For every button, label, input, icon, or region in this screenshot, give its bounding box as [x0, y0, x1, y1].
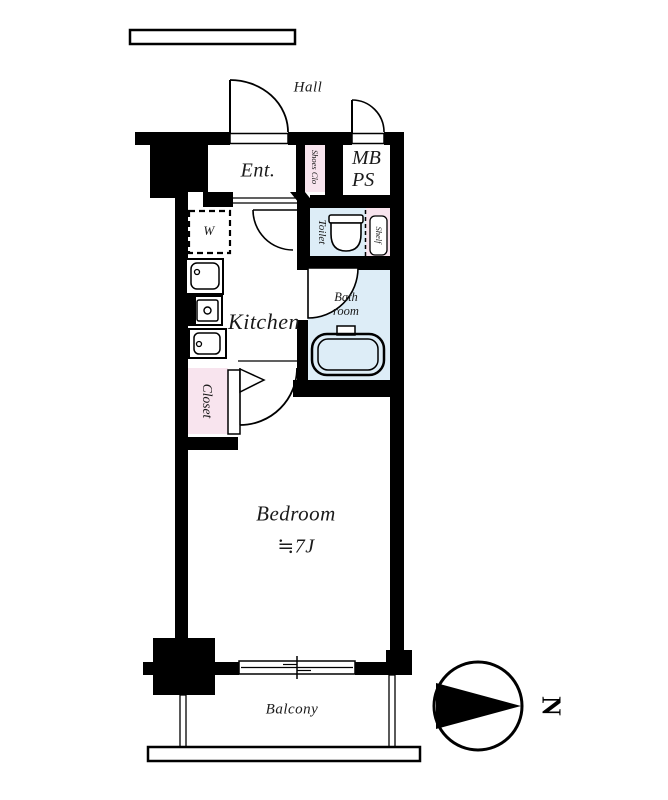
- north-label: N: [536, 696, 567, 716]
- balcony-edge: [148, 747, 420, 761]
- kitchen-label: Kitchen: [228, 309, 300, 335]
- kitchen-counter: [186, 259, 226, 358]
- washer-label: W: [203, 223, 214, 239]
- floorplan-drawing: [0, 0, 668, 800]
- bedroom-size-label: ≒7J: [277, 534, 314, 559]
- compass: [434, 662, 522, 750]
- scale-bar: [130, 30, 295, 44]
- meter-box-label: MB: [352, 147, 381, 169]
- bedroom-label: Bedroom: [256, 502, 336, 527]
- shoes-closet-label: Shoes Clo: [310, 150, 320, 184]
- entrance-door: [230, 80, 288, 144]
- bedroom-door: [238, 361, 300, 425]
- kitchen-door: [253, 210, 297, 250]
- floor-plan: Hall Ent. Shoes Clo MB PS W Toilet Shelf…: [0, 0, 668, 800]
- hall-label: Hall: [294, 80, 323, 97]
- toilet-label: Toilet: [316, 220, 328, 245]
- entry-step: [233, 198, 298, 203]
- meter-pipe-label: MB PS: [352, 147, 381, 192]
- entrance-label: Ent.: [241, 160, 276, 183]
- balcony-window: [239, 656, 355, 679]
- bathroom-label: Bath room: [333, 290, 359, 318]
- balcony-label: Balcony: [266, 702, 319, 719]
- closet-label: Closet: [199, 384, 215, 419]
- pipe-space-label: PS: [352, 169, 381, 191]
- shelf-label: Shelf: [374, 227, 384, 244]
- folding-door: [240, 369, 264, 392]
- meter-box-door: [352, 100, 384, 144]
